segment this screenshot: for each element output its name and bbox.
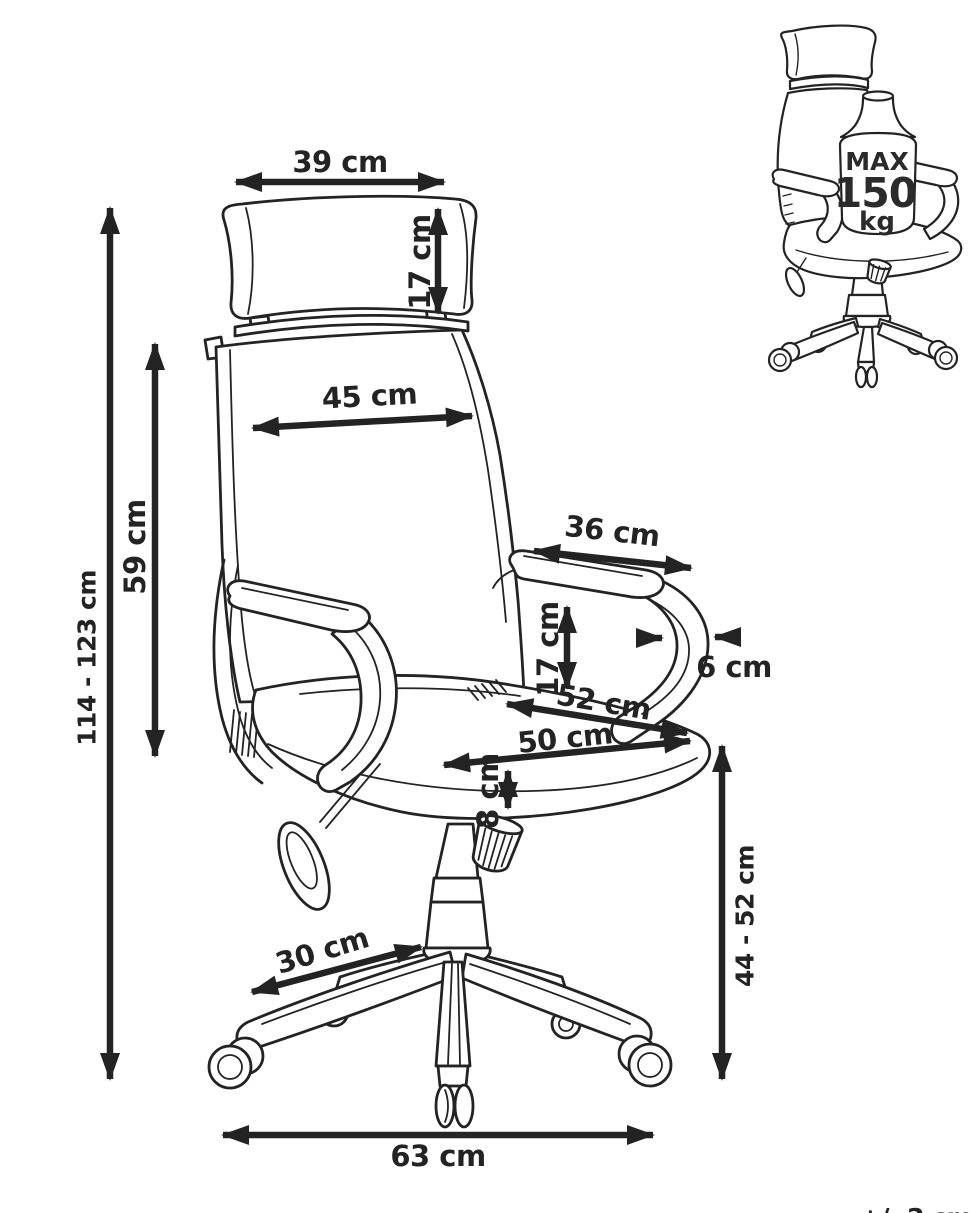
total-height-label: 114 - 123 cm xyxy=(73,570,102,746)
armrest-thickness-label: 6 cm xyxy=(696,650,772,684)
weight-capacity-figure: MAX 150 kg xyxy=(769,26,961,387)
lever-paddle-icon xyxy=(268,816,340,916)
tolerance-note: +/- 2 cm xyxy=(860,1203,970,1213)
front-right-caster-icon xyxy=(619,1036,671,1086)
armrest-length-label: 36 cm xyxy=(563,509,662,554)
headrest-width-label: 39 cm xyxy=(292,145,387,179)
chair-dimension-diagram: MAX 150 kg 39 cm 17 cm 45 cm 59 cm 114 -… xyxy=(0,0,970,1213)
backrest-height-label: 59 cm xyxy=(118,499,152,594)
seat-height-label: 44 - 52 cm xyxy=(731,845,760,987)
weight-unit: kg xyxy=(859,207,895,237)
diagram-canvas: MAX 150 kg 39 cm 17 cm 45 cm 59 cm 114 -… xyxy=(0,0,970,1213)
front-left-caster-icon xyxy=(209,1038,263,1088)
headrest-height-label: 17 cm xyxy=(403,214,437,309)
base-width-label: 63 cm xyxy=(390,1139,485,1173)
front-center-caster-icon xyxy=(436,1066,473,1127)
seat-thickness-label: 8 cm xyxy=(471,753,505,829)
backrest-width-label: 45 cm xyxy=(321,377,418,416)
